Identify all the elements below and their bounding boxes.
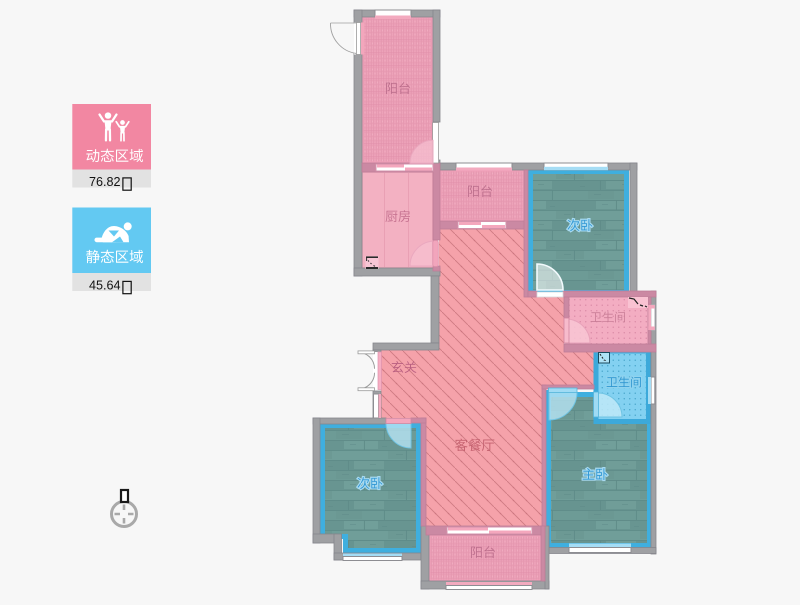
svg-text:76.82: 76.82 bbox=[89, 175, 121, 189]
svg-text:45.64: 45.64 bbox=[89, 279, 121, 293]
